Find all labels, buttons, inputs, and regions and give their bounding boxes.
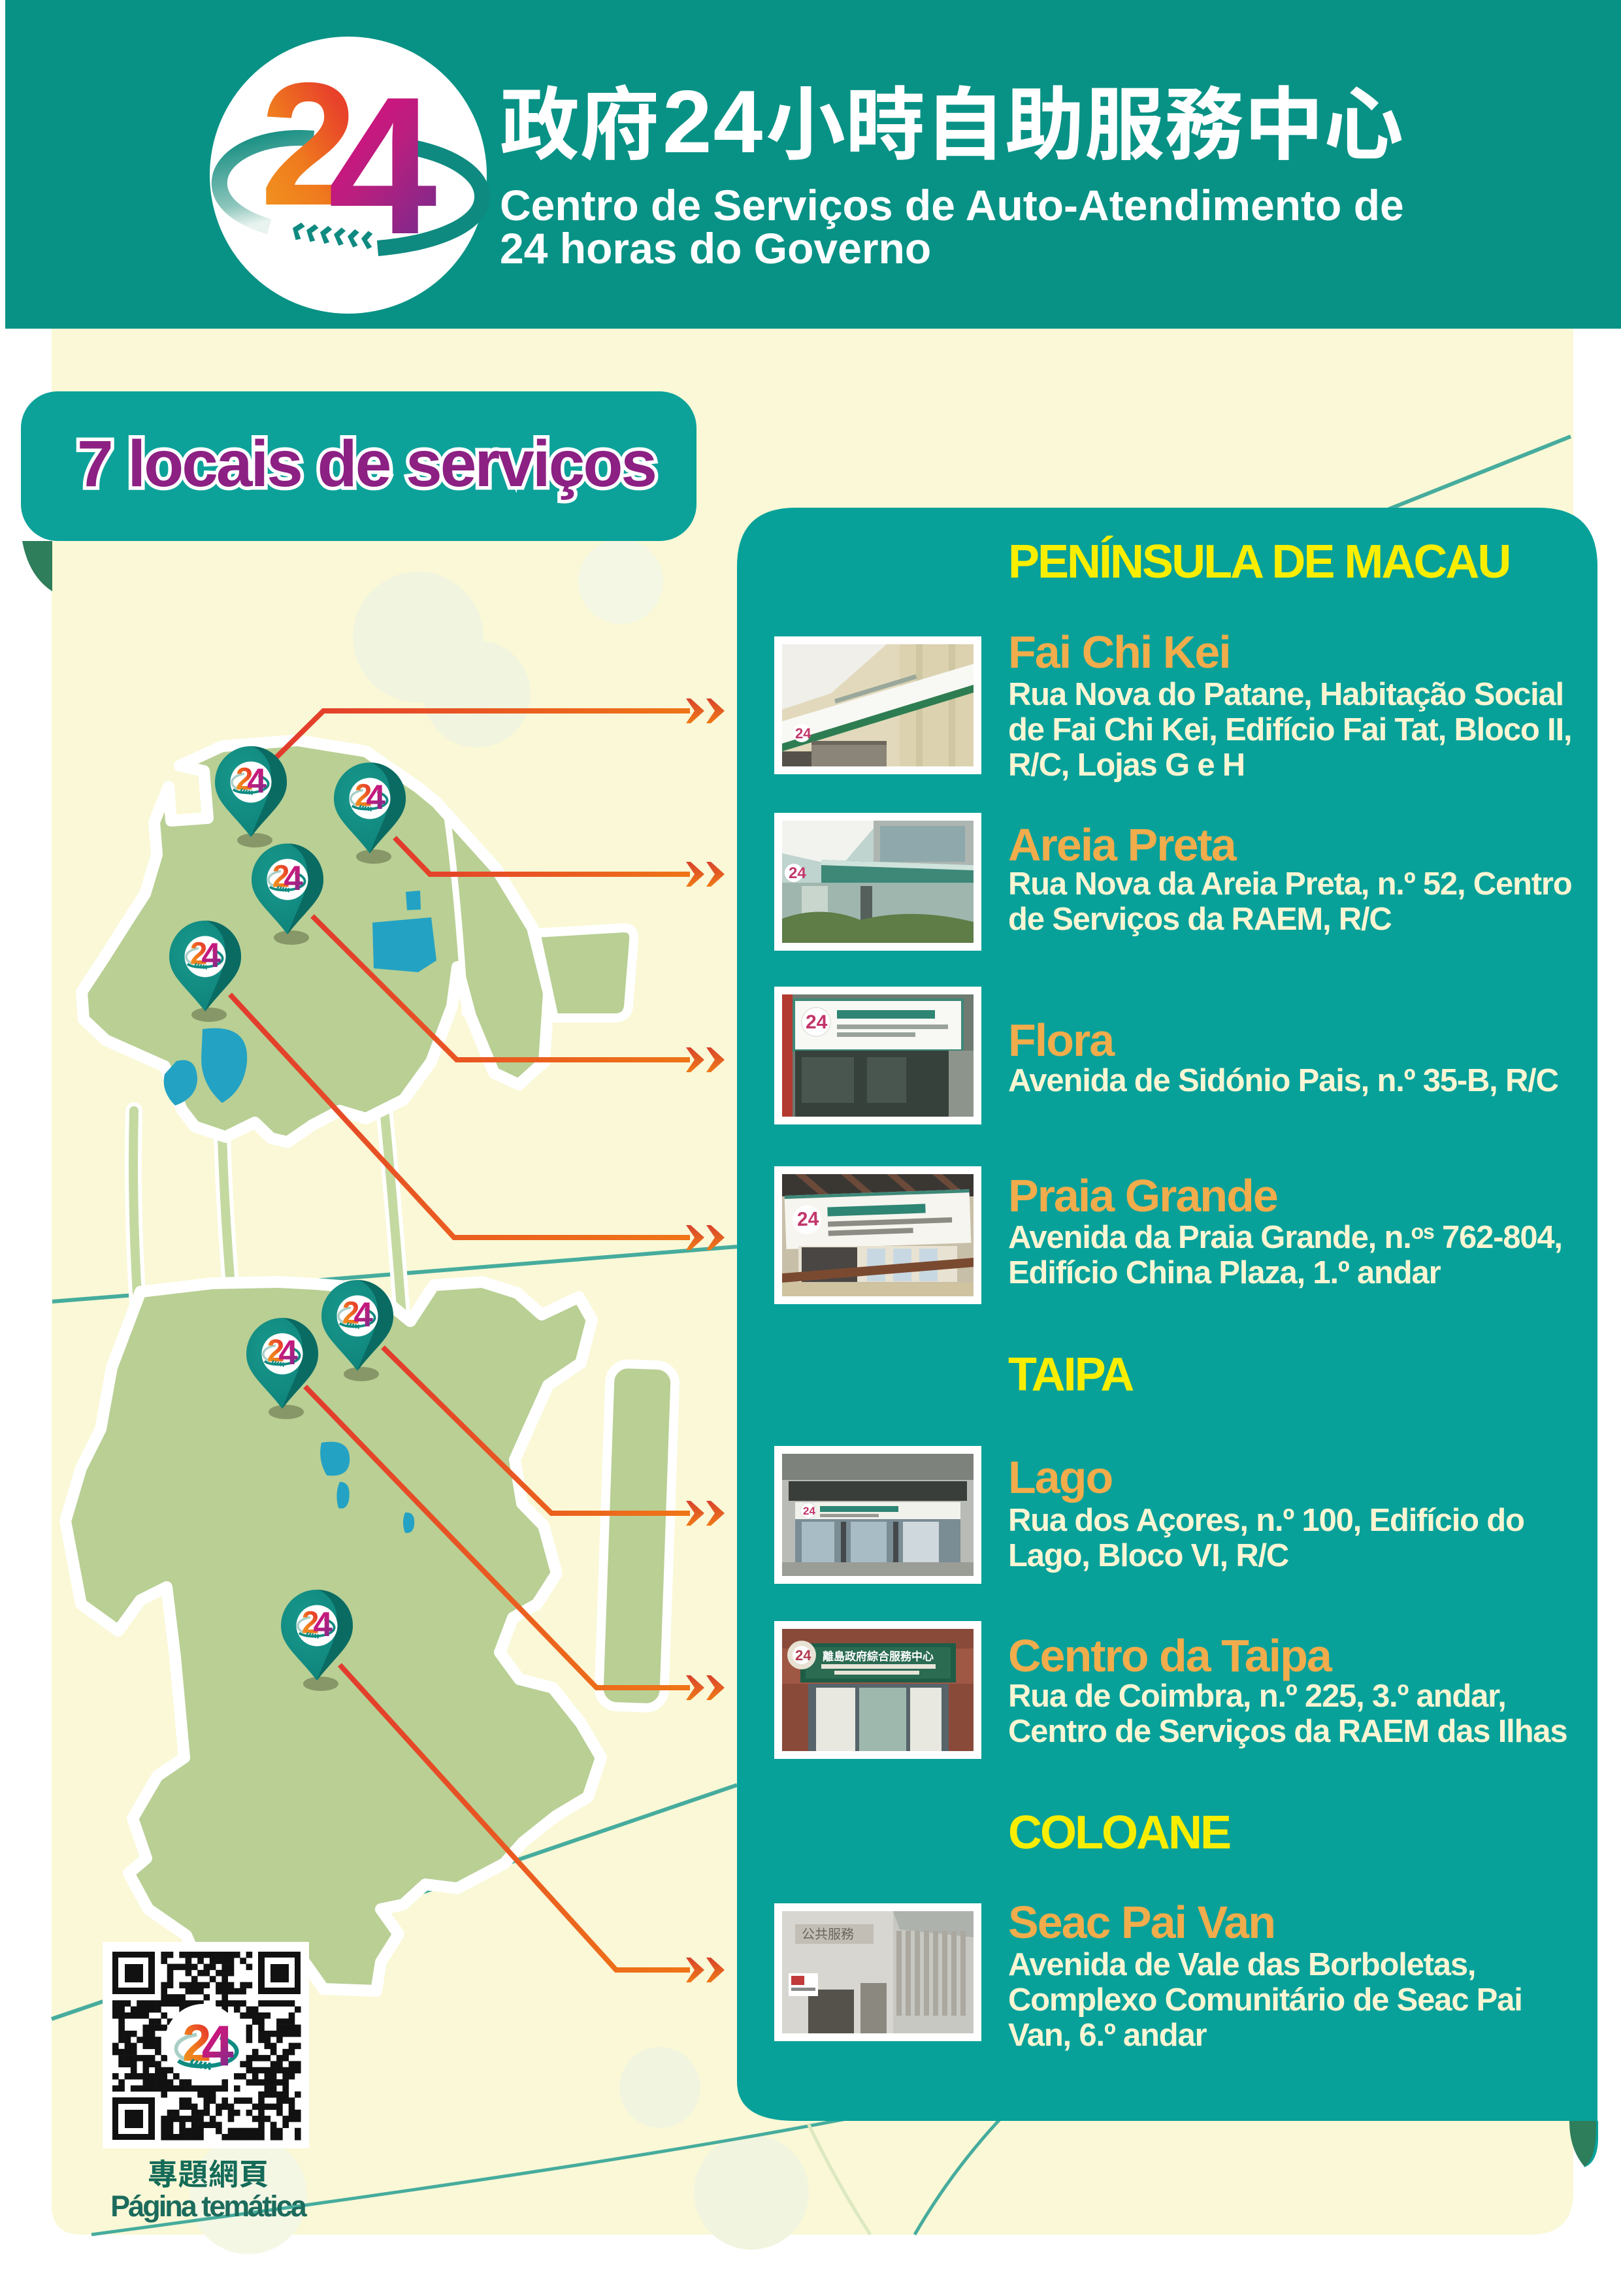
svg-text:Areia Preta: Areia Preta [1008, 819, 1237, 870]
svg-text:PENÍNSULA DE MACAU: PENÍNSULA DE MACAU [1008, 536, 1509, 588]
svg-text:Avenida da Praia Grande, n.os: Avenida da Praia Grande, n.os 762-804, [1008, 1220, 1562, 1255]
svg-text:de Fai Chi Kei, Edifício Fai T: de Fai Chi Kei, Edifício Fai Tat, Bloco … [1008, 712, 1571, 747]
svg-text:Centro da Taipa: Centro da Taipa [1008, 1630, 1333, 1681]
svg-text:Centro de Serviços de Auto-Ate: Centro de Serviços de Auto-Atendimento d… [500, 181, 1404, 229]
svg-text:R/C, Lojas G e H: R/C, Lojas G e H [1008, 747, 1245, 783]
svg-text:7 locais de serviços: 7 locais de serviços [77, 427, 655, 500]
svg-text:24: 24 [806, 1011, 828, 1033]
svg-text:24: 24 [789, 864, 806, 882]
svg-text:COLOANE: COLOANE [1008, 1807, 1230, 1859]
svg-text:4: 4 [328, 56, 438, 275]
svg-text:Flora: Flora [1008, 1015, 1115, 1066]
svg-text:Praia Grande: Praia Grande [1008, 1170, 1277, 1221]
svg-text:公共服務: 公共服務 [802, 1927, 854, 1942]
svg-text:24: 24 [795, 725, 811, 742]
svg-text:Rua dos Açores, n.º 100, Edifí: Rua dos Açores, n.º 100, Edifício do [1008, 1503, 1524, 1538]
svg-text:24: 24 [796, 1208, 819, 1230]
svg-text:Avenida de Sidónio Pais, n.º 3: Avenida de Sidónio Pais, n.º 35-B, R/C [1008, 1063, 1559, 1098]
svg-text:Lago: Lago [1008, 1452, 1112, 1503]
svg-text:Seac Pai Van: Seac Pai Van [1008, 1897, 1275, 1948]
svg-text:Edifício China Plaza, 1.º anda: Edifício China Plaza, 1.º andar [1008, 1255, 1441, 1290]
svg-text:24 horas do Governo: 24 horas do Governo [500, 224, 931, 272]
svg-text:Fai Chi Kei: Fai Chi Kei [1008, 627, 1230, 678]
svg-text:Rua Nova do Patane, Habitação: Rua Nova do Patane, Habitação Social [1008, 677, 1564, 712]
svg-text:Centro de Serviços da RAEM das: Centro de Serviços da RAEM das Ilhas [1008, 1714, 1567, 1749]
svg-text:Lago, Bloco VI, R/C: Lago, Bloco VI, R/C [1008, 1538, 1289, 1573]
svg-text:Avenida de Vale das Borboletas: Avenida de Vale das Borboletas, [1008, 1947, 1475, 1982]
svg-text:Rua Nova da Areia Preta, n.º 5: Rua Nova da Areia Preta, n.º 52, Centro [1008, 866, 1572, 902]
svg-text:24: 24 [663, 72, 764, 171]
svg-text:Rua de Coimbra, n.º 225, 3.º a: Rua de Coimbra, n.º 225, 3.º andar, [1008, 1679, 1506, 1714]
svg-text:24: 24 [795, 1647, 811, 1664]
svg-text:Van, 6.º andar: Van, 6.º andar [1008, 2018, 1207, 2053]
svg-text:Complexo Comunitário de Seac P: Complexo Comunitário de Seac Pai [1008, 1982, 1522, 2018]
svg-text:de Serviços da RAEM, R/C: de Serviços da RAEM, R/C [1008, 902, 1392, 937]
svg-text:24: 24 [803, 1505, 815, 1517]
svg-text:Página temática: Página temática [110, 2189, 308, 2223]
svg-text:離島政府綜合服務中心: 離島政府綜合服務中心 [823, 1650, 934, 1663]
svg-text:TAIPA: TAIPA [1008, 1349, 1134, 1401]
